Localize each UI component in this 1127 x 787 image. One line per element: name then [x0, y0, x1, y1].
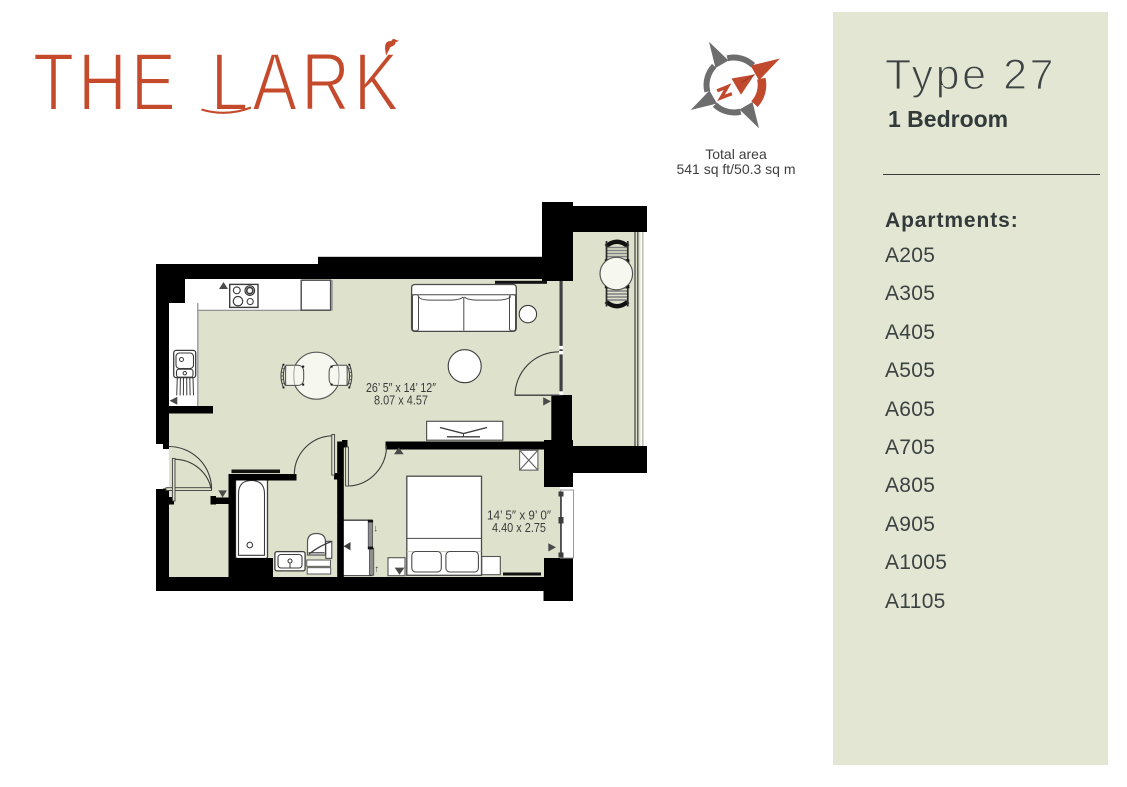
svg-text:4.40 x 2.75: 4.40 x 2.75 — [492, 520, 546, 535]
svg-text:↑: ↑ — [375, 564, 380, 575]
svg-text:8.07 x 4.57: 8.07 x 4.57 — [374, 393, 428, 408]
svg-text:↓: ↓ — [374, 524, 379, 535]
